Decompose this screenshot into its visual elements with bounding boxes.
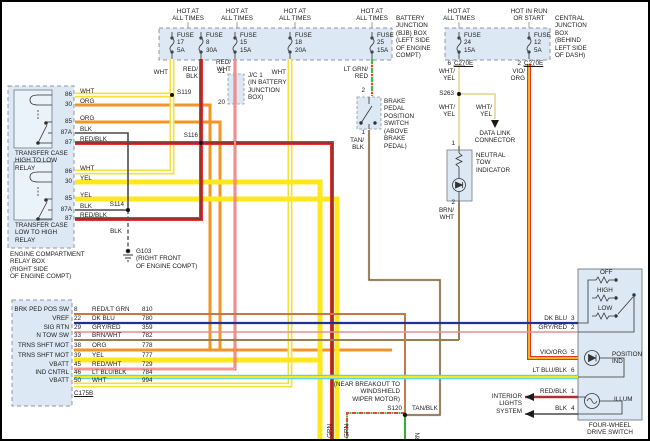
wire-redltgrn xyxy=(74,314,405,415)
wire-redblk-illum xyxy=(525,393,578,401)
wire-wht-fuse18 xyxy=(74,59,290,385)
pcm-connector-box xyxy=(12,300,72,406)
wire-brnwht xyxy=(74,201,459,340)
wire-wht-fuse17 xyxy=(75,59,172,172)
wire-vioorg xyxy=(529,64,578,358)
wire-ltgrn-dashed xyxy=(347,413,405,441)
wire-blk-illum xyxy=(525,410,578,418)
engine-compartment-relay-box xyxy=(8,86,74,248)
battery-junction-box xyxy=(159,28,392,60)
wiring-diagram-canvas xyxy=(2,2,650,441)
wiring-diagram-page: HOT AT ALL TIMES HOT AT ALL TIMES HOT AT… xyxy=(0,0,650,441)
neutral-tow-indicator-box xyxy=(447,150,472,201)
ground-symbol-g103 xyxy=(123,249,133,261)
data-link-connector-arrow xyxy=(491,120,499,128)
central-junction-box xyxy=(445,28,550,60)
hot-label-ticks xyxy=(188,22,529,28)
